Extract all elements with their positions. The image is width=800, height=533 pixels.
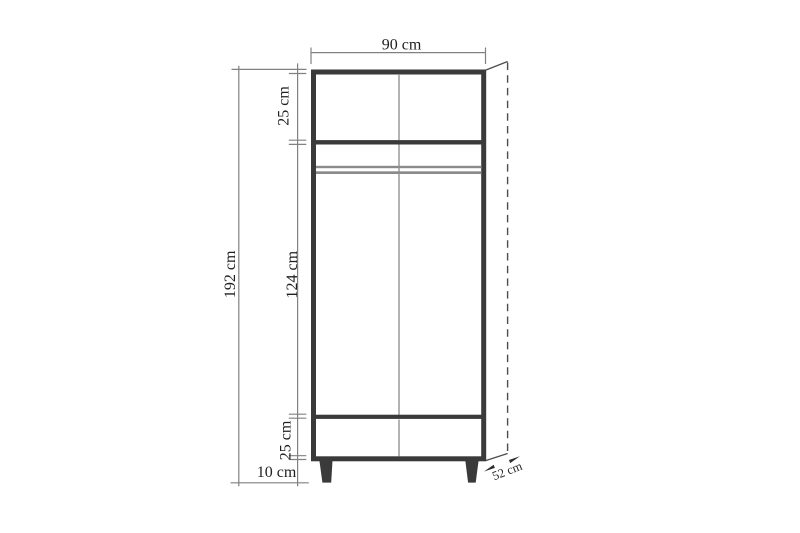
svg-text:25 cm: 25 cm	[277, 420, 294, 460]
svg-text:10 cm: 10 cm	[257, 464, 297, 481]
svg-text:192 cm: 192 cm	[222, 250, 239, 298]
svg-text:90 cm: 90 cm	[382, 36, 422, 53]
svg-text:25 cm: 25 cm	[276, 86, 293, 126]
svg-text:124 cm: 124 cm	[284, 250, 301, 298]
